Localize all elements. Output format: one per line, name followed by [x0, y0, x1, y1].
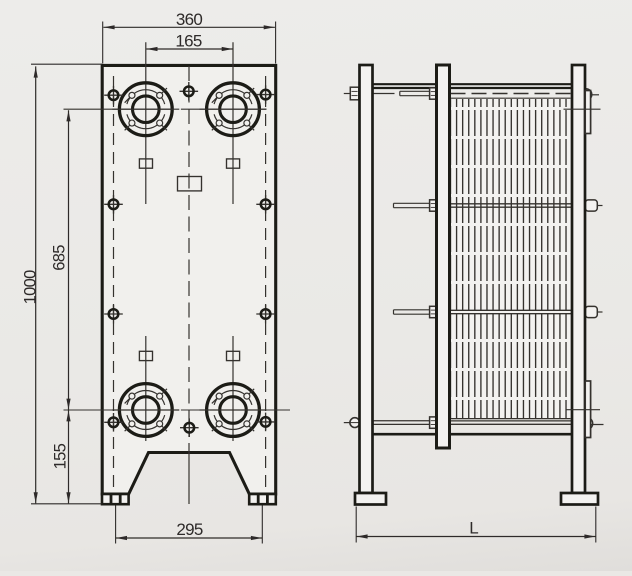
svg-text:360: 360 [176, 10, 203, 29]
svg-text:295: 295 [176, 520, 203, 539]
svg-text:165: 165 [175, 31, 202, 50]
svg-text:155: 155 [51, 443, 69, 469]
svg-text:1000: 1000 [21, 270, 39, 304]
svg-text:685: 685 [50, 245, 68, 271]
svg-text:L: L [469, 519, 478, 538]
